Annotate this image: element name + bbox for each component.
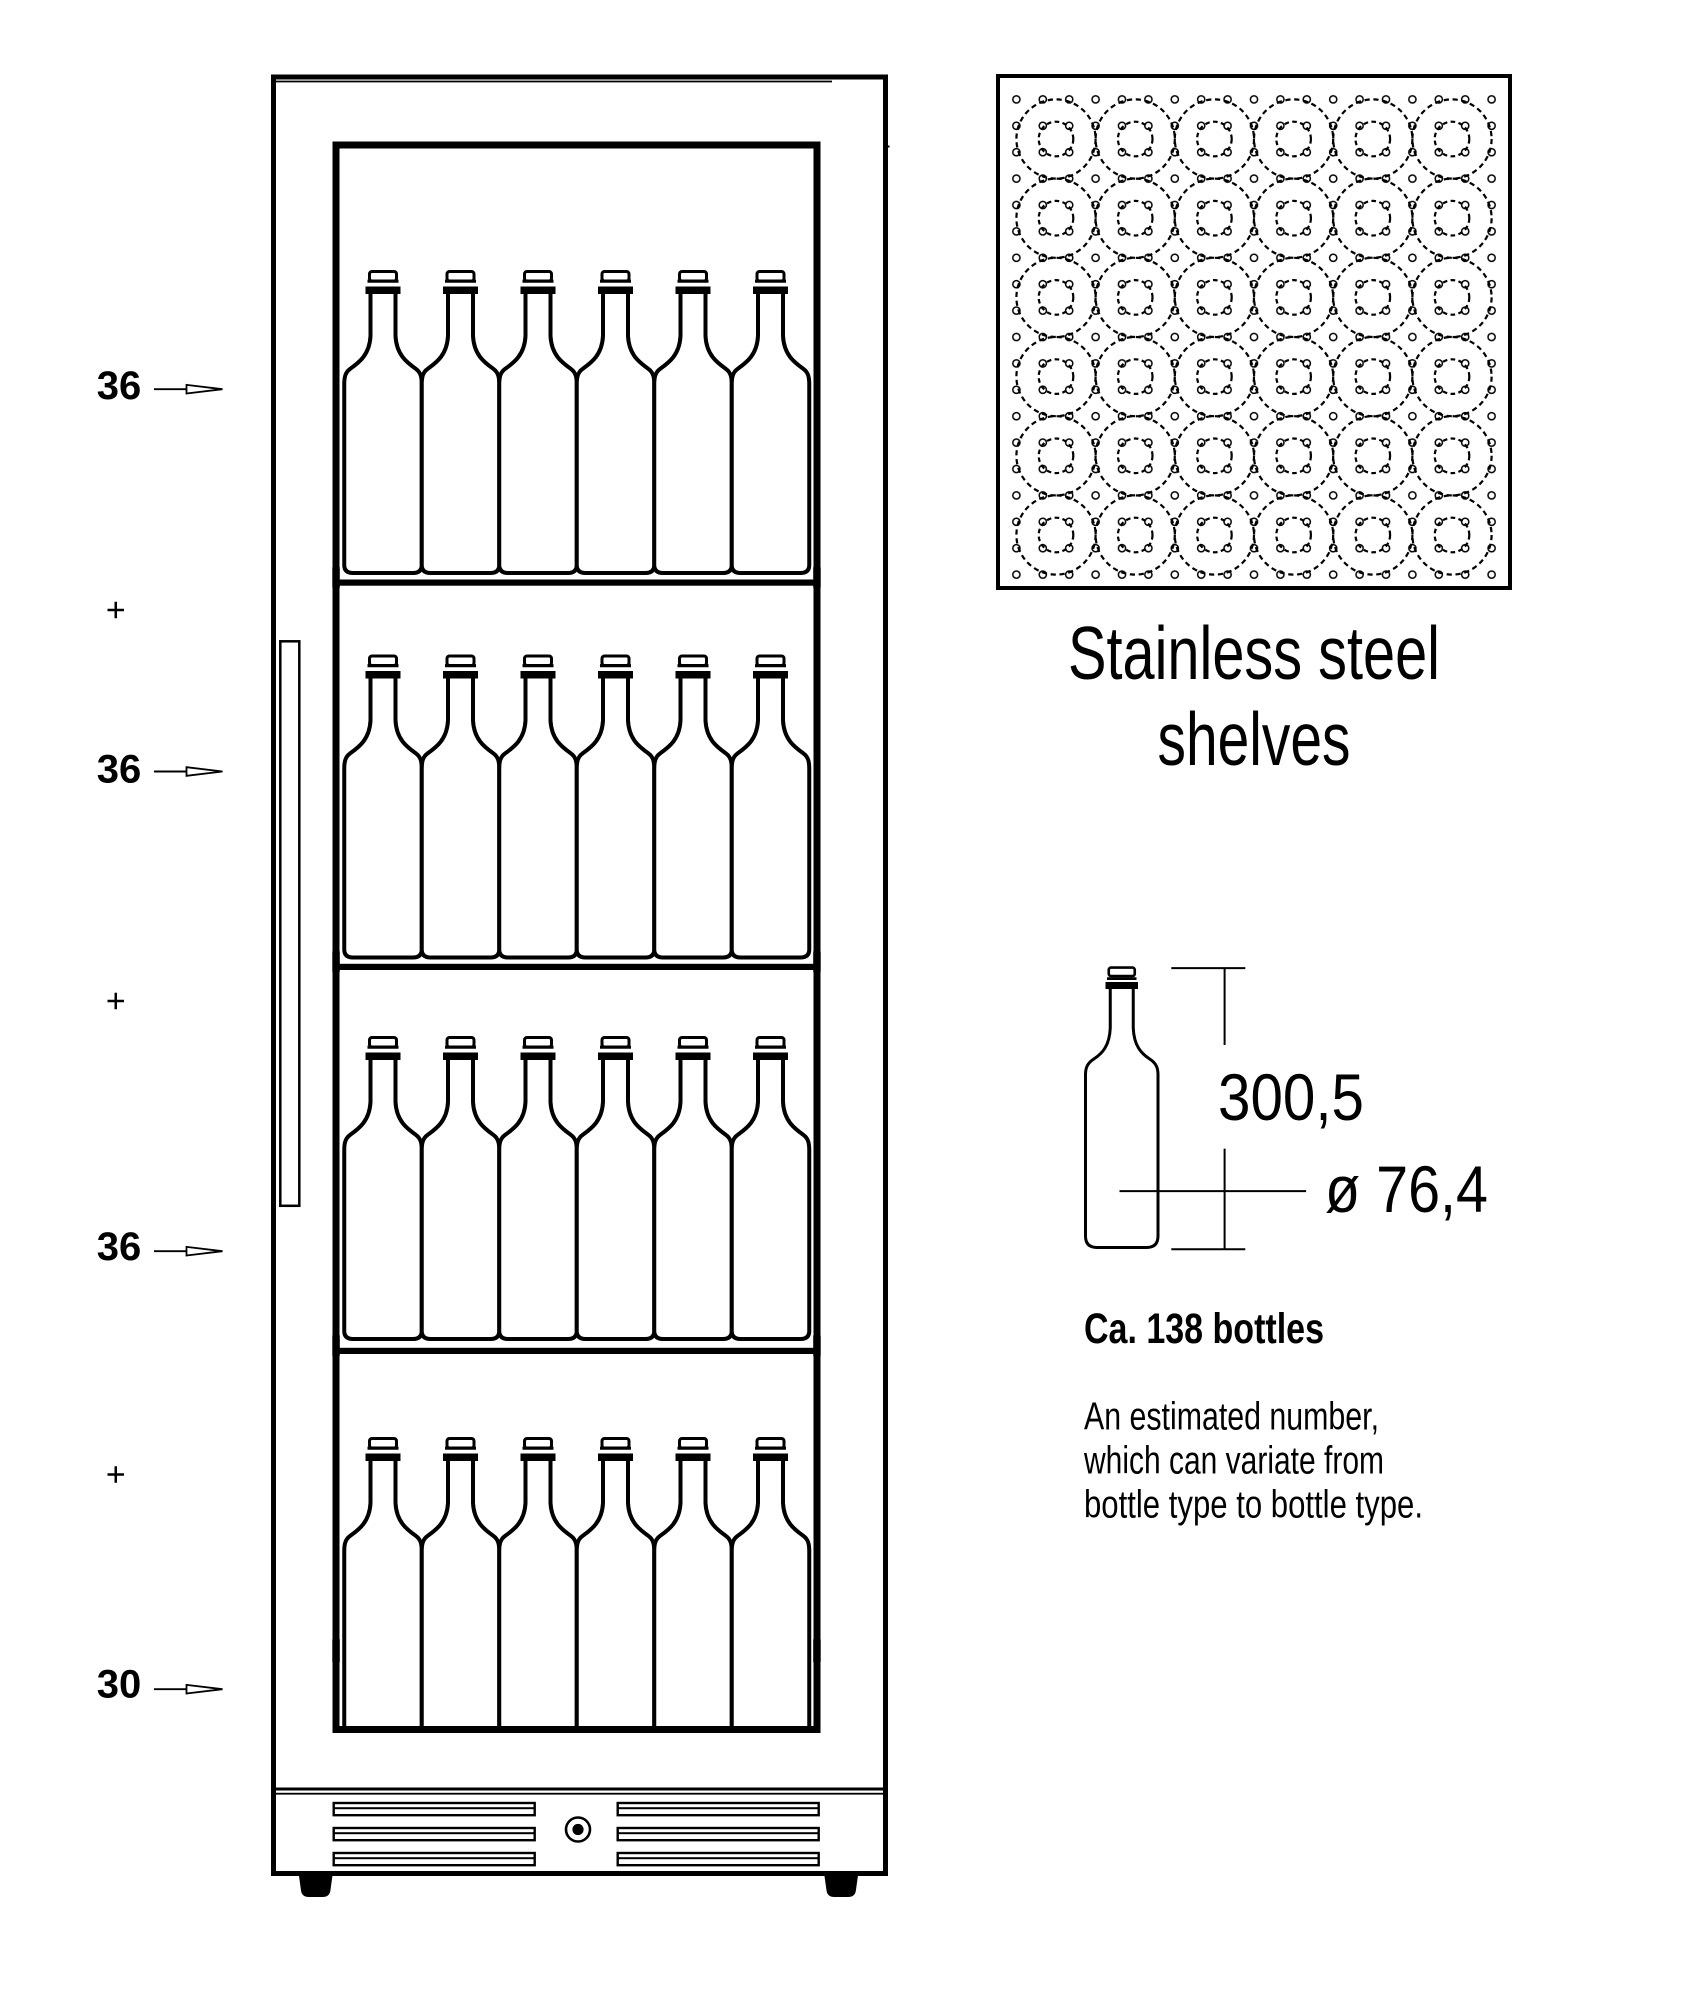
svg-text:36: 36 [97, 1225, 142, 1269]
svg-text:Stainless steel: Stainless steel [1068, 611, 1440, 695]
svg-text:which can variate from: which can variate from [1083, 1440, 1384, 1483]
svg-text:bottle type to bottle type.: bottle type to bottle type. [1084, 1484, 1423, 1527]
svg-text:36: 36 [97, 747, 142, 791]
svg-text:ø 76,4: ø 76,4 [1325, 1152, 1488, 1226]
svg-text:shelves: shelves [1158, 697, 1351, 781]
svg-text:Ca. 138 bottles: Ca. 138 bottles [1084, 1305, 1324, 1353]
svg-text:300,5: 300,5 [1218, 1060, 1364, 1134]
svg-text:36: 36 [97, 364, 142, 408]
svg-text:An estimated number,: An estimated number, [1084, 1396, 1379, 1439]
svg-text:30: 30 [97, 1663, 142, 1707]
